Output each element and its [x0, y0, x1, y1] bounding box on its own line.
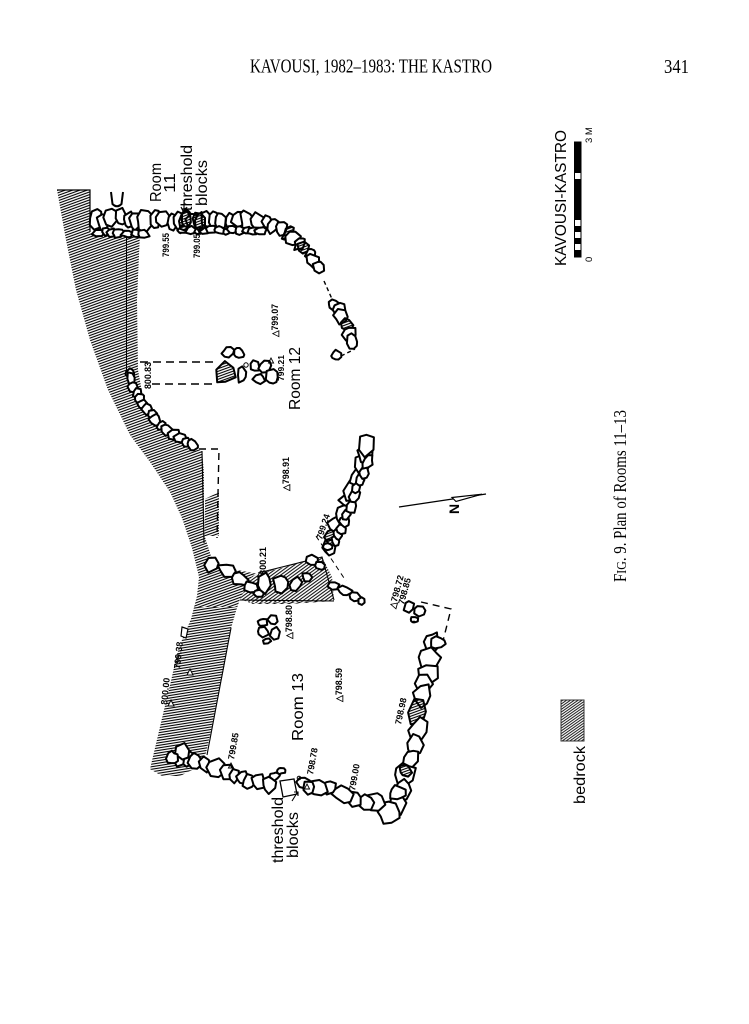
svg-text:Room 12: Room 12	[287, 347, 304, 410]
svg-text:FIG. 9. Plan of Rooms 11–13: FIG. 9. Plan of Rooms 11–13	[610, 410, 630, 582]
svg-text:799.85: 799.85	[226, 732, 241, 760]
svg-text:△798.91: △798.91	[281, 457, 291, 492]
svg-text:N: N	[446, 504, 462, 514]
svg-text:△798.59: △798.59	[334, 668, 344, 703]
svg-text:341: 341	[664, 57, 689, 78]
svg-text:799.55: 799.55	[161, 233, 171, 257]
svg-text:3 M: 3 M	[584, 127, 595, 143]
svg-text:KAVOUSI-KASTRO: KAVOUSI-KASTRO	[553, 130, 570, 266]
svg-text:Room 13: Room 13	[290, 673, 307, 741]
svg-text:799.05: 799.05	[192, 234, 202, 258]
svg-text:798.98: 798.98	[393, 697, 408, 725]
svg-text:△799.07: △799.07	[270, 304, 280, 338]
svg-text:blocks: blocks	[285, 812, 302, 858]
svg-text:0: 0	[584, 257, 595, 262]
svg-text:bedrock: bedrock	[572, 745, 589, 804]
svg-text:799.00: 799.00	[347, 763, 362, 791]
svg-text:800.83: 800.83	[143, 362, 153, 389]
svg-text:798.78: 798.78	[305, 747, 320, 775]
svg-text:KAVOUSI, 1982–1983: THE KASTRO: KAVOUSI, 1982–1983: THE KASTRO	[250, 57, 492, 78]
svg-text:11: 11	[162, 173, 179, 193]
svg-text:799.21: 799.21	[276, 355, 286, 381]
svg-text:blocks: blocks	[194, 160, 211, 206]
svg-text:△798.80: △798.80	[284, 605, 294, 640]
svg-text:800.21: 800.21	[258, 547, 268, 575]
